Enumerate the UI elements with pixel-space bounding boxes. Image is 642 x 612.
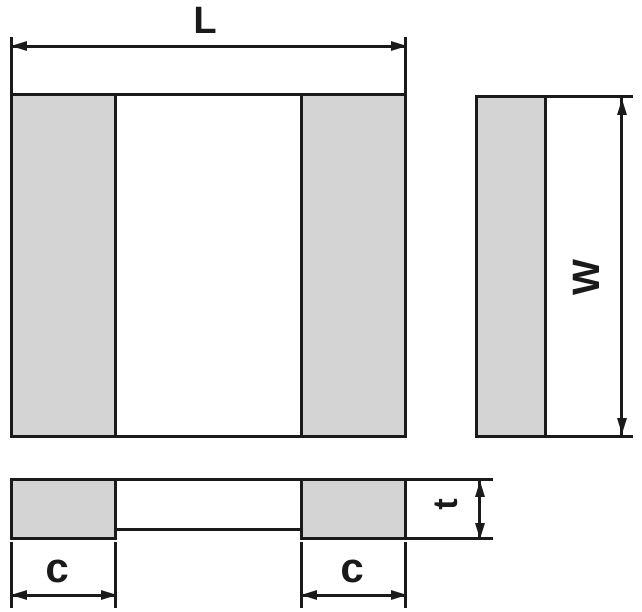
l-dimension-line xyxy=(10,45,407,48)
top-view-left-terminal xyxy=(10,93,117,438)
side-view-terminal xyxy=(475,95,547,438)
t-arrow-down-icon xyxy=(475,523,485,539)
l-arrow-left-icon xyxy=(11,41,27,51)
top-view-right-terminal xyxy=(300,93,407,438)
c-left-arrow-left-icon xyxy=(11,590,27,600)
c-left-dimension-label: c xyxy=(40,549,74,587)
c-right-arrow-left-icon xyxy=(301,590,317,600)
dimension-drawing: L W c c t xyxy=(0,0,642,612)
w-arrow-down-icon xyxy=(617,418,627,434)
bottom-view-left-terminal xyxy=(10,478,117,540)
bottom-view-body xyxy=(113,478,304,531)
w-dimension-line xyxy=(620,95,623,438)
t-arrow-up-icon xyxy=(475,481,485,497)
c-right-dimension-label: c xyxy=(335,549,369,587)
w-arrow-up-icon xyxy=(617,99,627,115)
bottom-view-right-terminal xyxy=(300,478,407,540)
w-dimension-label: W xyxy=(565,255,609,299)
c-right-arrow-right-icon xyxy=(391,590,407,600)
l-arrow-right-icon xyxy=(391,41,407,51)
c-left-arrow-right-icon xyxy=(101,590,117,600)
t-dimension-label: t xyxy=(429,487,463,521)
l-dimension-label: L xyxy=(185,1,225,41)
